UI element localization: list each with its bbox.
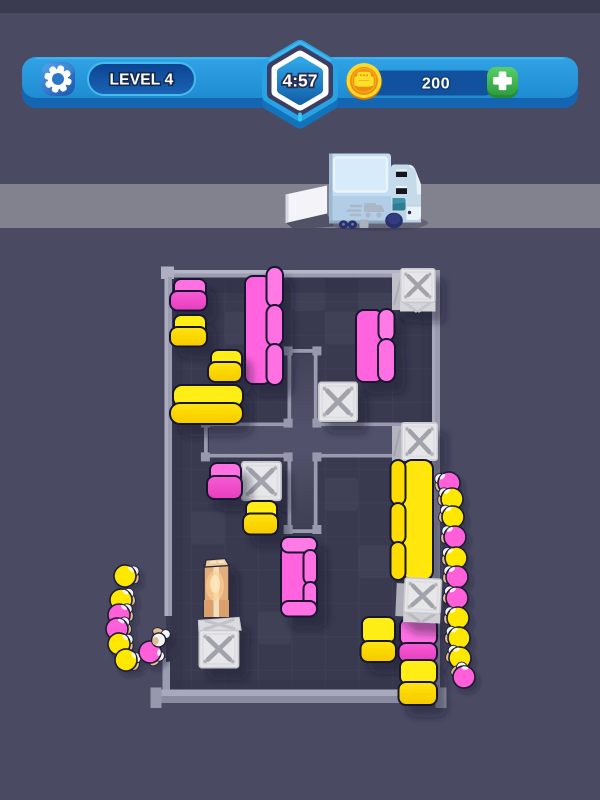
svg-text:200: 200 [422,76,450,93]
svg-text:LEVEL 4: LEVEL 4 [110,72,174,89]
svg-text:4:57: 4:57 [282,71,317,91]
